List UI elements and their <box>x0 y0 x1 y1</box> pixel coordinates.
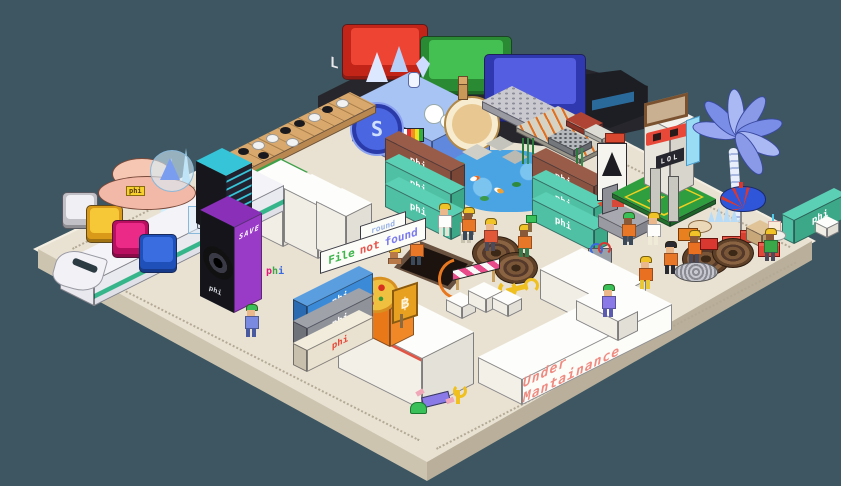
lily-pad <box>480 196 489 201</box>
worker-selfie <box>436 203 452 236</box>
speaker-brand: phi <box>209 284 222 298</box>
worker-at-counter <box>600 284 616 317</box>
container-logo: phi <box>555 216 571 233</box>
banner-cap <box>605 133 625 143</box>
go-stone-white <box>336 99 349 108</box>
worker-shades <box>620 212 636 245</box>
container-logo: phi <box>410 202 426 219</box>
go-stone-black <box>238 148 249 155</box>
speaker-cone <box>203 241 233 286</box>
bitcoin-symbol: ฿ <box>400 293 409 314</box>
silver-coil <box>674 262 718 282</box>
worker-selfie <box>645 212 661 245</box>
phi-block-i: i <box>278 266 284 277</box>
file-word: File <box>328 245 355 267</box>
go-stone-white <box>308 113 321 122</box>
dropped-hard-hat <box>410 402 427 414</box>
pixel-art-scene: LAN S <box>0 0 841 486</box>
go-stone-white <box>286 138 299 147</box>
phi-letter-blocks: phi <box>266 266 284 277</box>
container-logo: phi <box>332 335 348 352</box>
tower-column <box>650 168 661 214</box>
go-stone-black <box>294 120 305 127</box>
worker-vest <box>460 207 476 240</box>
keycap-blue <box>139 234 177 273</box>
worker-drinking <box>243 304 259 337</box>
triangle-logo <box>602 152 622 176</box>
loco-chimney <box>408 72 420 88</box>
go-stone-black <box>280 127 291 134</box>
worker-hammer <box>762 228 778 261</box>
red-toolbox <box>700 238 718 250</box>
save-label: SAVE <box>239 223 260 241</box>
coin-symbol: S <box>371 117 383 141</box>
go-stone-white <box>266 134 279 143</box>
lily-pad <box>512 182 521 187</box>
worker-red-shirt <box>482 218 498 251</box>
not-word: not <box>360 237 380 256</box>
go-stone-black <box>258 152 269 159</box>
worker-axe <box>516 224 532 257</box>
go-stone-black <box>322 106 333 113</box>
worker-no-hat <box>662 241 678 274</box>
standing-wrench <box>452 384 464 404</box>
cable-spool <box>712 238 754 268</box>
go-stone-white <box>252 141 265 150</box>
sign-post <box>400 314 403 328</box>
flying-saucer: phi <box>98 148 198 214</box>
tower-column <box>668 176 679 222</box>
saucer-badge: phi <box>126 186 145 196</box>
worker-yellow-pants <box>637 256 653 289</box>
meerkat <box>458 76 466 98</box>
